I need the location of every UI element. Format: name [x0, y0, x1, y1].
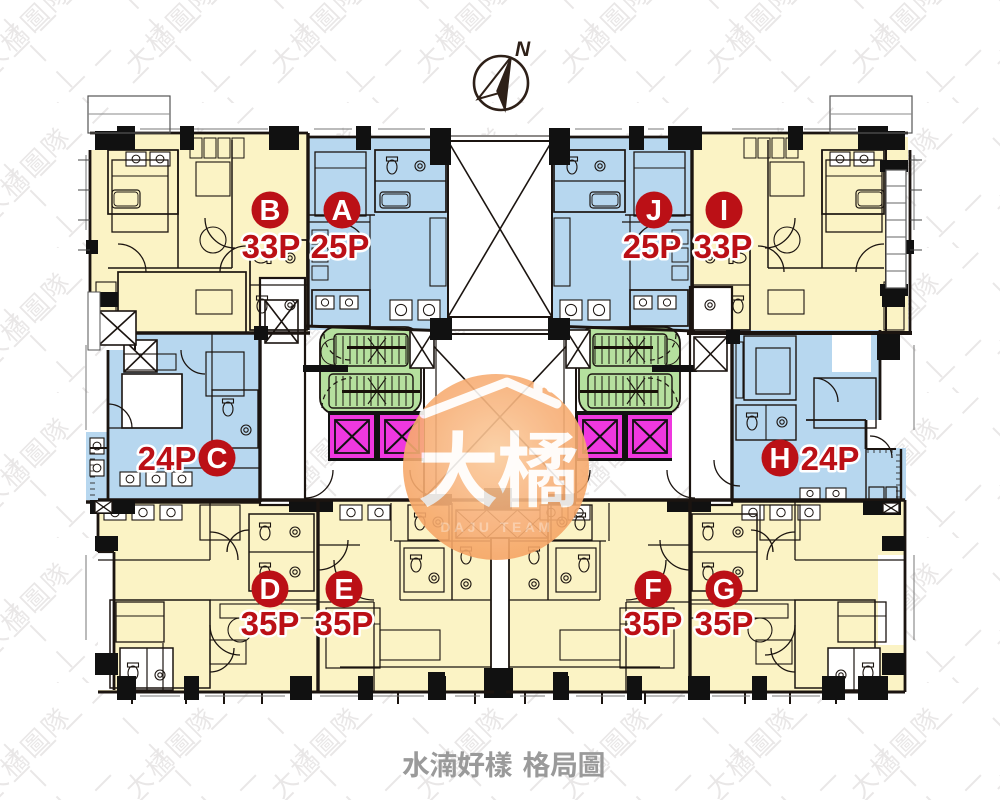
svg-text:25P: 25P — [311, 228, 370, 265]
svg-text:A: A — [332, 195, 353, 227]
svg-text:35P: 35P — [241, 605, 300, 642]
svg-text:H: H — [770, 443, 791, 475]
svg-text:F: F — [644, 574, 662, 606]
svg-text:35P: 35P — [315, 605, 374, 642]
svg-text:24P: 24P — [801, 440, 860, 477]
svg-text:33P: 33P — [694, 228, 753, 265]
svg-text:35P: 35P — [695, 605, 754, 642]
svg-text:J: J — [646, 195, 662, 227]
svg-text:33P: 33P — [242, 228, 301, 265]
svg-text:24P: 24P — [138, 440, 197, 477]
svg-text:DAJU TEAM: DAJU TEAM — [440, 519, 553, 535]
svg-text:D: D — [260, 574, 281, 606]
svg-text:G: G — [713, 574, 736, 606]
svg-text:N: N — [515, 38, 531, 61]
svg-text:35P: 35P — [624, 605, 683, 642]
svg-text:C: C — [207, 443, 228, 475]
svg-text:I: I — [720, 195, 728, 227]
svg-text:25P: 25P — [623, 228, 682, 265]
svg-text:B: B — [260, 195, 281, 227]
svg-text:E: E — [334, 574, 353, 606]
